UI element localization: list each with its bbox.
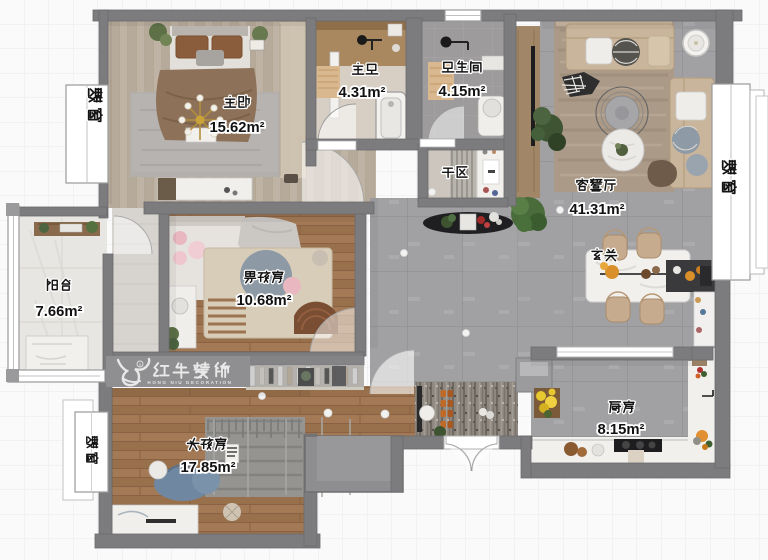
svg-text:HONG NIU DECORATION: HONG NIU DECORATION	[147, 380, 232, 385]
svg-text:4.15m²: 4.15m²	[439, 84, 486, 100]
svg-text:17.85m²: 17.85m²	[180, 460, 235, 476]
svg-text:41.31m²: 41.31m²	[569, 202, 624, 218]
svg-text:8.15m²: 8.15m²	[598, 422, 645, 438]
svg-text:4.31m²: 4.31m²	[339, 85, 386, 101]
svg-text:7.66m²: 7.66m²	[36, 304, 83, 320]
svg-text:10.68m²: 10.68m²	[236, 293, 291, 309]
svg-text:15.62m²: 15.62m²	[209, 120, 264, 136]
svg-text:R: R	[139, 363, 142, 367]
